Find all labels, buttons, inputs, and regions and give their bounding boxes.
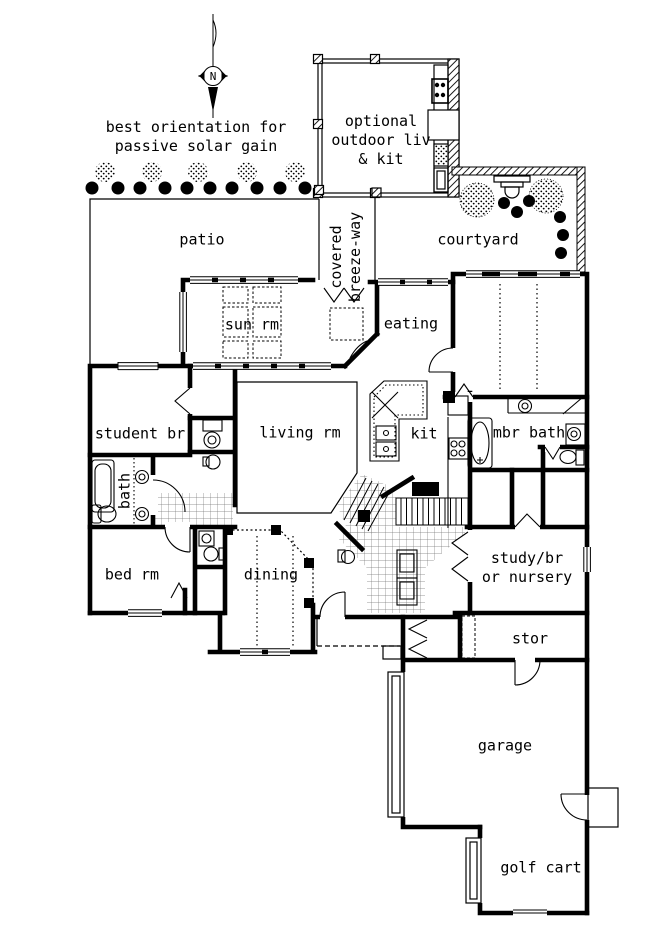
fountain xyxy=(494,176,530,198)
living-rm-floor-inset xyxy=(237,382,357,513)
room-label-mbr-bath: mbr bath xyxy=(493,423,565,442)
courtyard-area xyxy=(452,167,585,272)
room-label-eating: eating xyxy=(384,314,438,333)
tree-row xyxy=(86,162,312,195)
floor-plan: N xyxy=(0,0,650,938)
stair-landing-wall xyxy=(412,482,439,496)
room-label-garage: garage xyxy=(478,736,532,755)
room-label-stor: stor xyxy=(512,629,548,648)
room-label-patio: patio xyxy=(179,230,224,249)
room-label-kit: kit xyxy=(410,424,437,443)
room-label-dining: dining xyxy=(244,565,298,584)
orientation-note: best orientation for passive solar gain xyxy=(106,118,287,156)
room-label-bath: bath xyxy=(115,473,134,509)
porch-area xyxy=(317,617,401,659)
room-label-breezeway: covered breeze-way xyxy=(327,212,365,302)
room-label-study: study/br or nursery xyxy=(482,549,572,587)
compass-icon xyxy=(199,14,228,118)
kitchen-corner-post xyxy=(443,391,455,403)
room-label-bed-rm: bed rm xyxy=(105,565,159,584)
room-label-outdoor-liv: optional outdoor liv & kit xyxy=(331,112,430,170)
floor-plan-drawing: N xyxy=(0,0,650,938)
room-label-courtyard: courtyard xyxy=(437,230,518,249)
compass-north-letter: N xyxy=(210,70,217,83)
walls xyxy=(90,274,587,913)
room-label-student-br: student br xyxy=(95,424,185,443)
room-label-living-rm: living rm xyxy=(259,423,340,442)
sun-rm-skylights xyxy=(223,287,475,658)
room-label-sun-rm: sun rm xyxy=(225,315,279,334)
room-label-golf-cart: golf cart xyxy=(500,858,581,877)
